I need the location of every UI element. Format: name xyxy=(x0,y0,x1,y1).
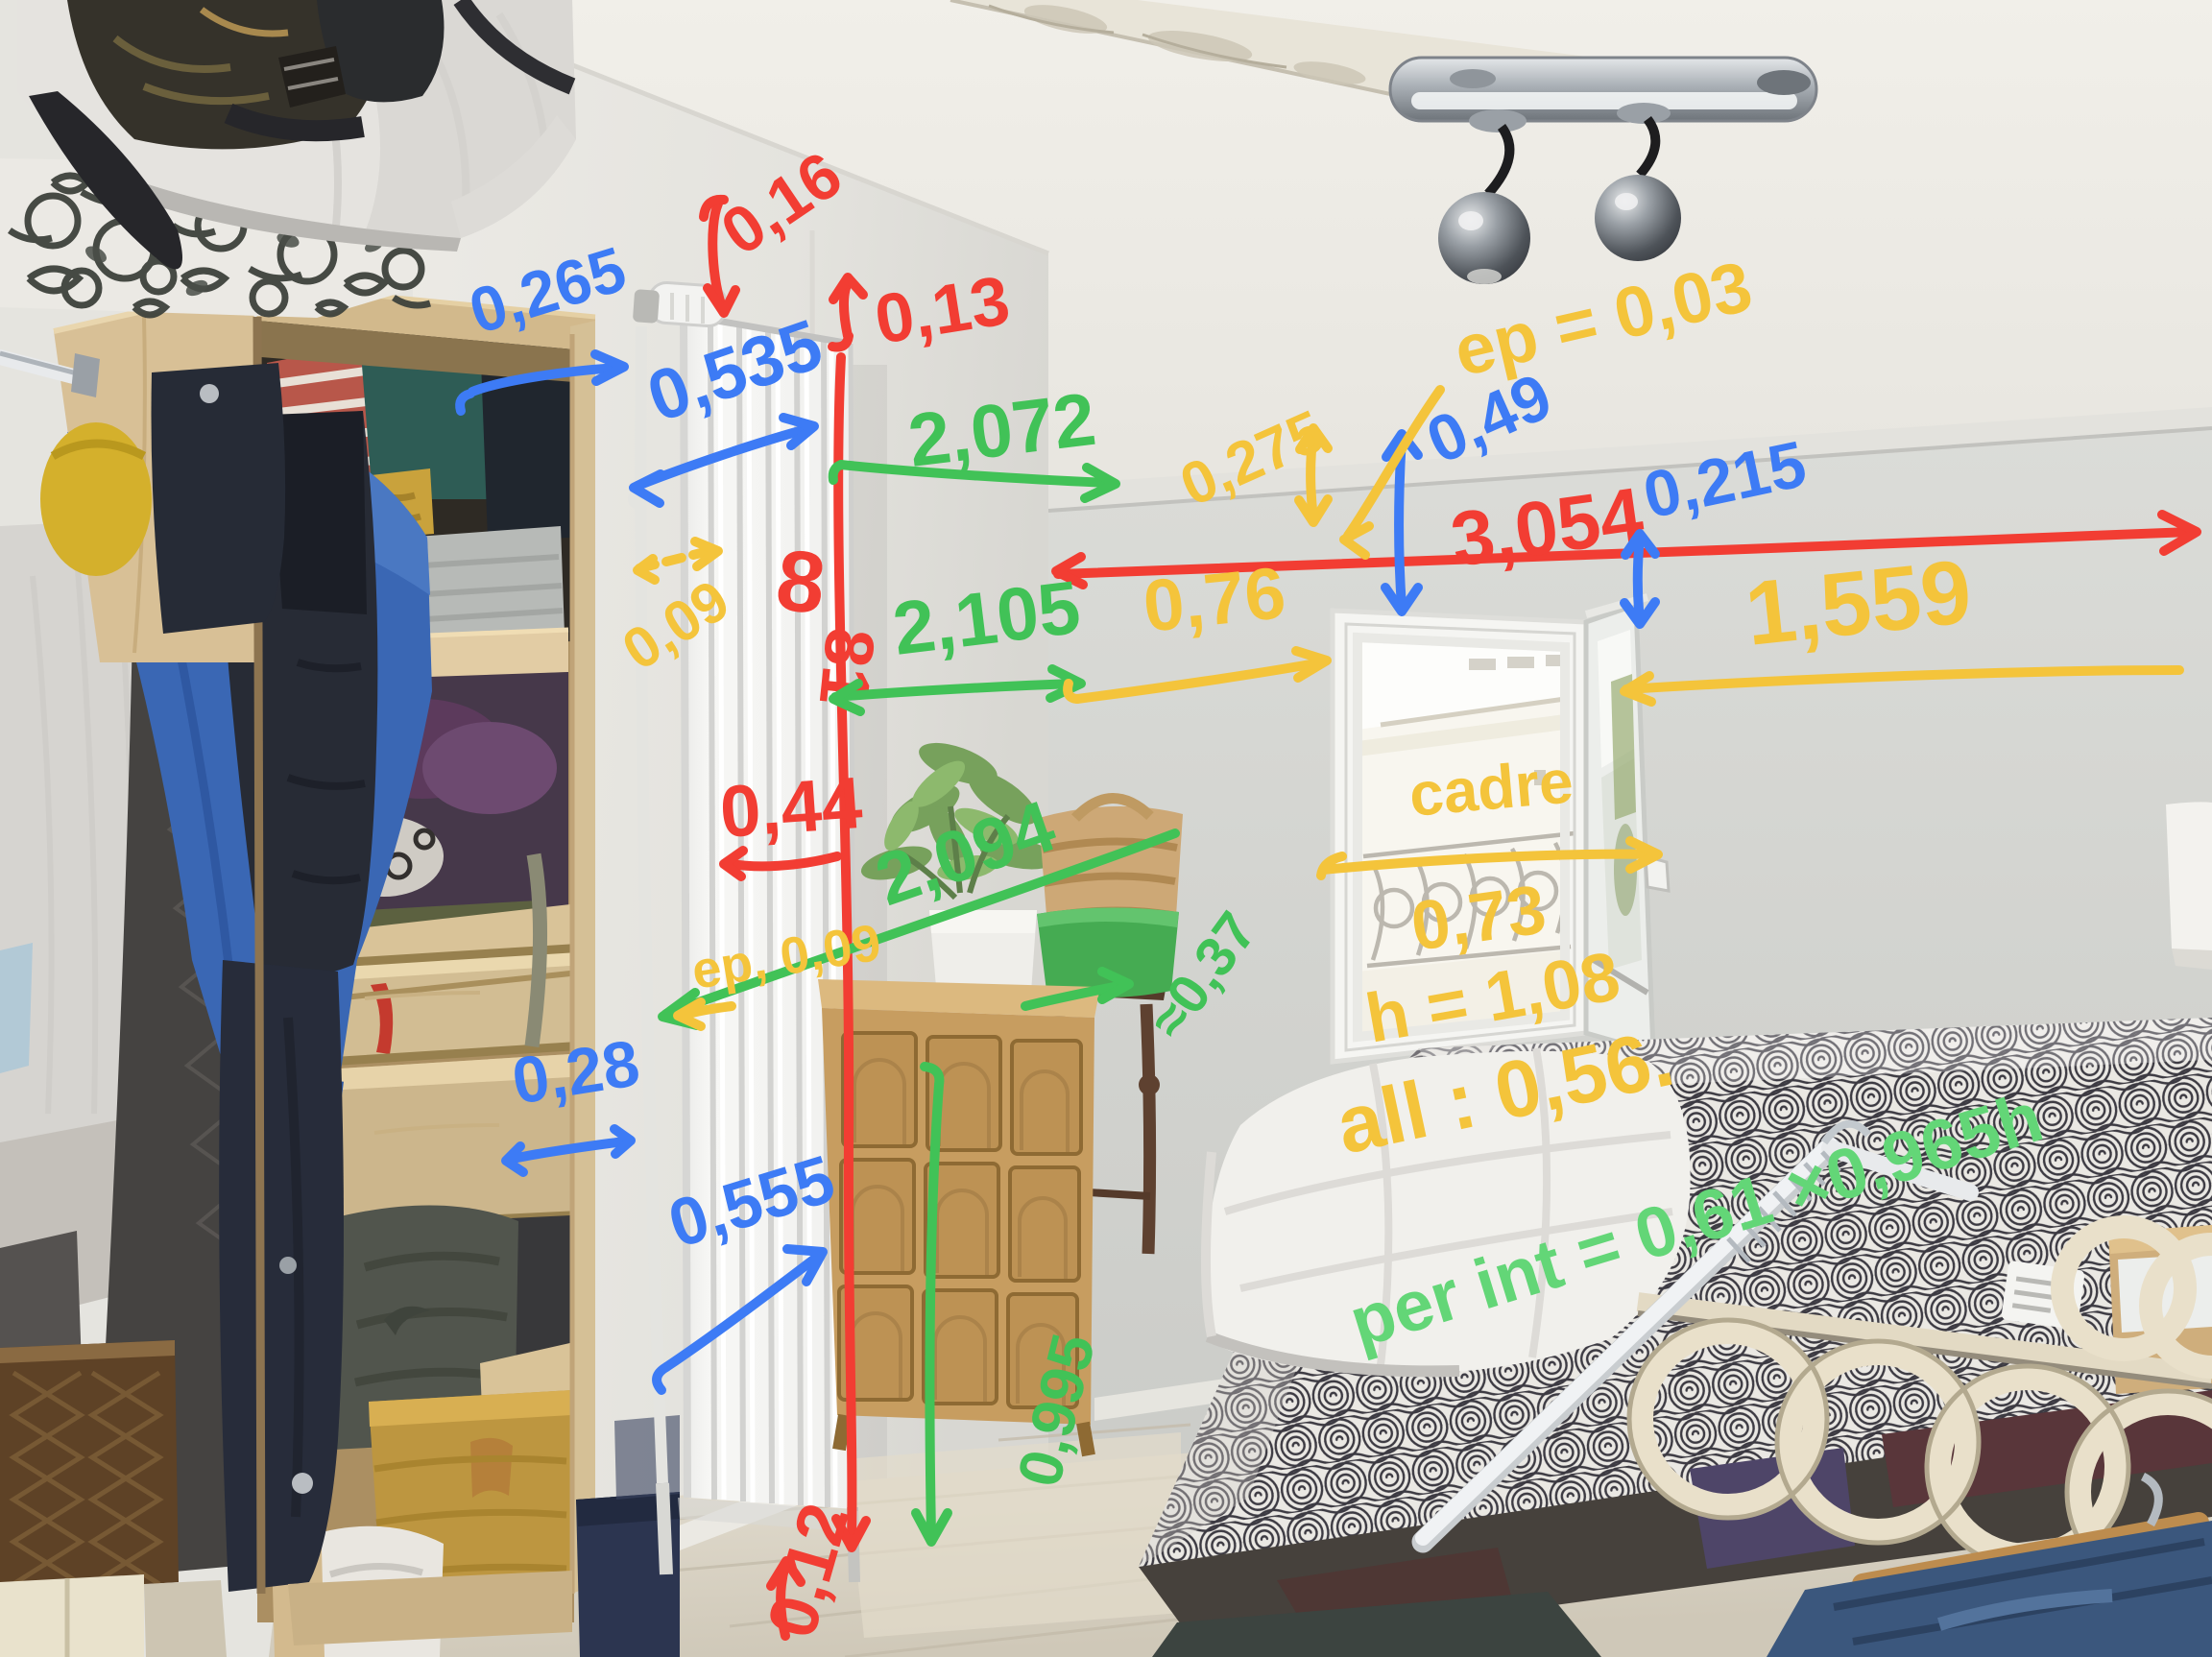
svg-text:0,44: 0,44 xyxy=(717,762,864,853)
svg-text:8: 8 xyxy=(772,532,829,633)
svg-text:cadre: cadre xyxy=(1407,746,1575,829)
svg-text:0,76: 0,76 xyxy=(1140,552,1289,648)
